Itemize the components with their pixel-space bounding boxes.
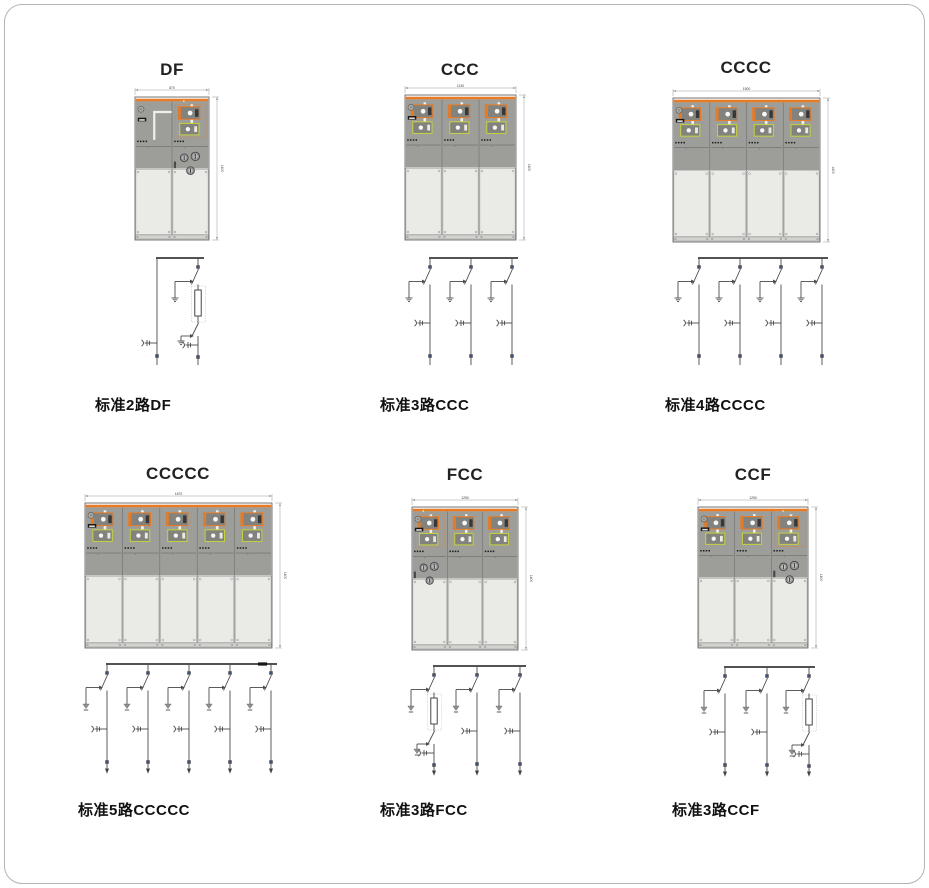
page-border [4, 4, 925, 884]
